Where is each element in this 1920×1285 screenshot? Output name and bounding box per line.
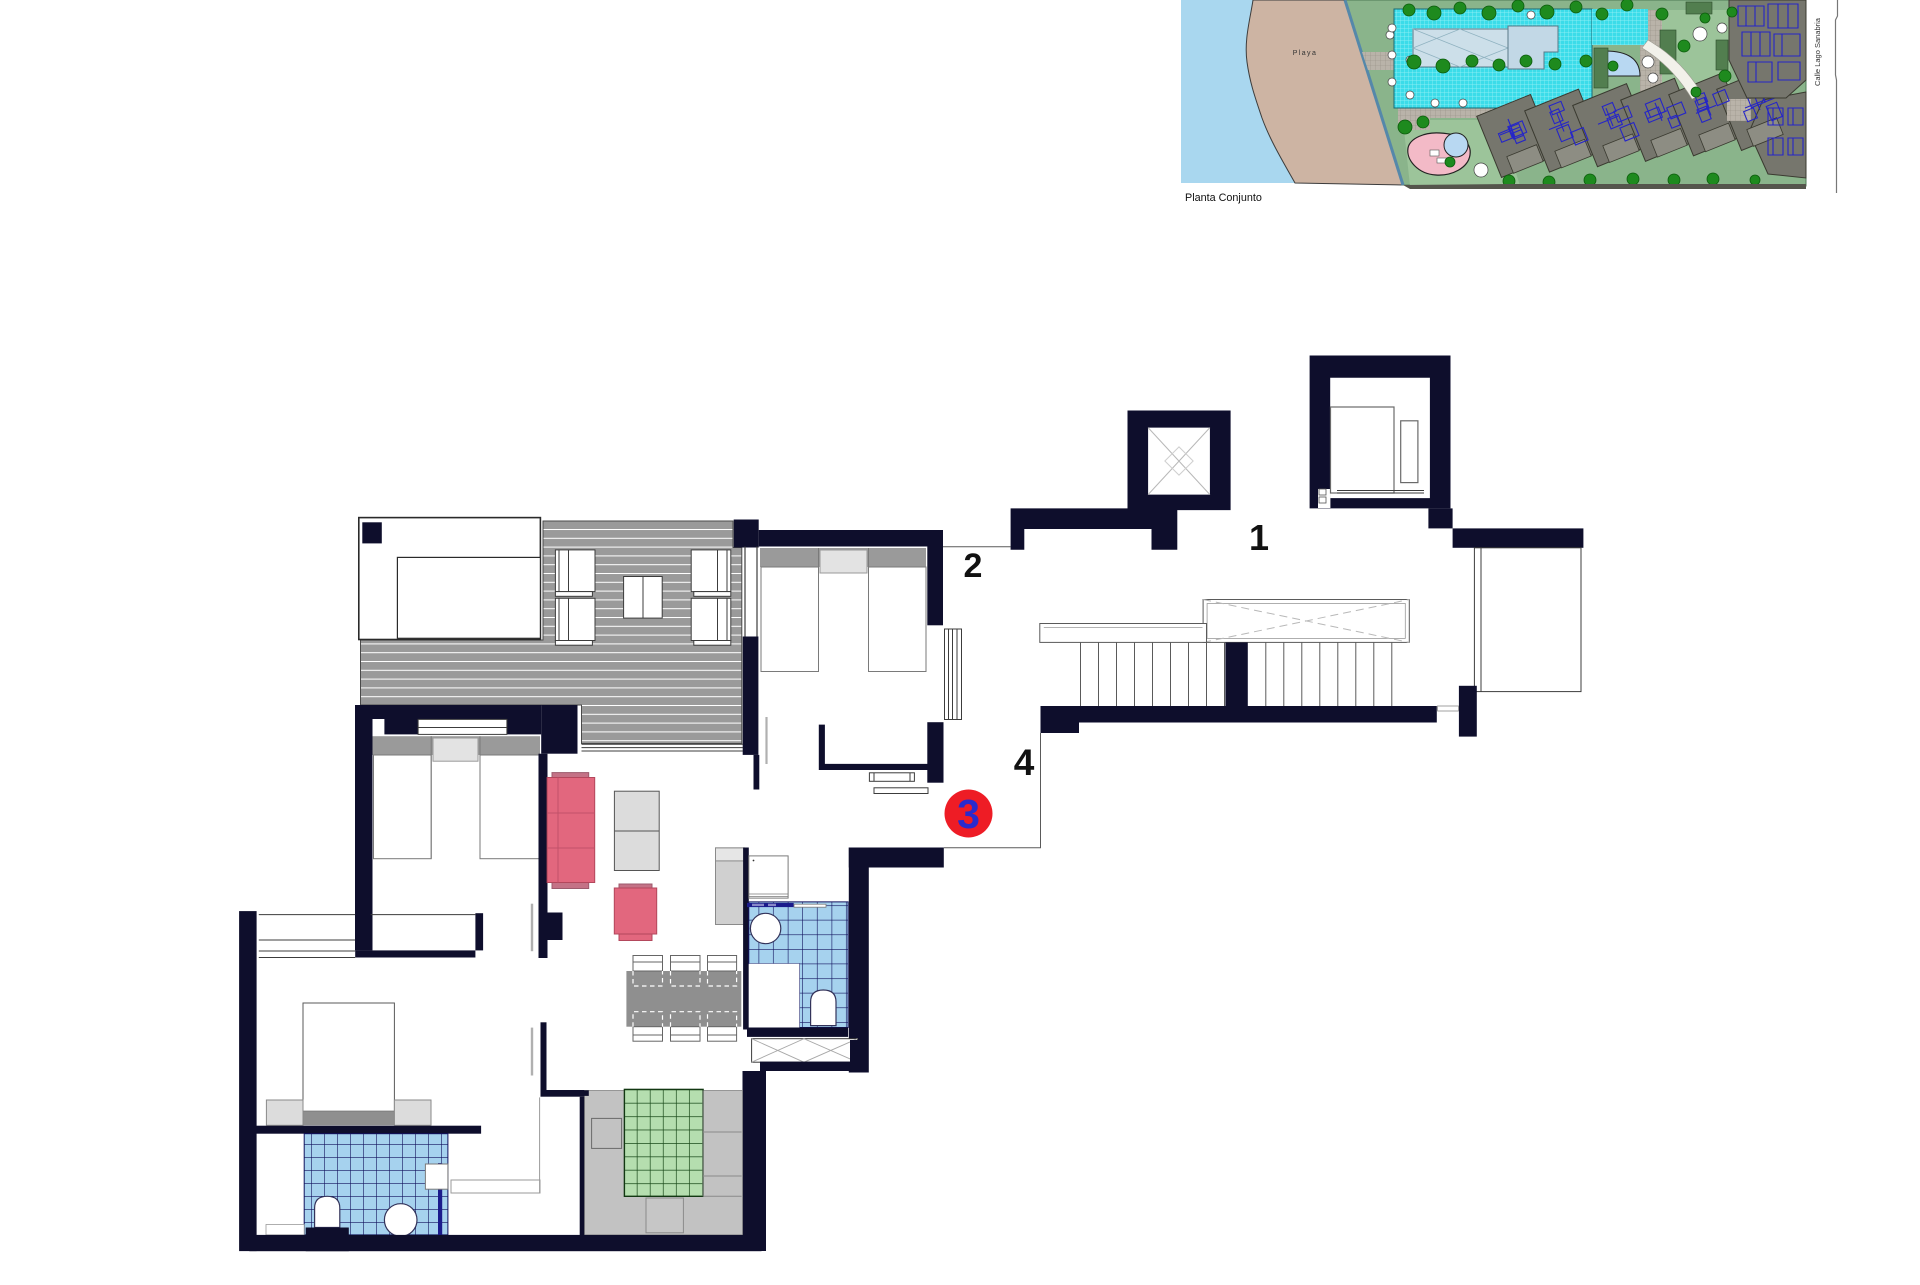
svg-text:1: 1 bbox=[1249, 517, 1269, 558]
svg-text:Planta Conjunto: Planta Conjunto bbox=[1185, 192, 1262, 204]
svg-text:4: 4 bbox=[1014, 742, 1035, 783]
svg-text:Playa: Playa bbox=[1293, 50, 1318, 57]
svg-text:2: 2 bbox=[964, 547, 983, 585]
svg-text:3: 3 bbox=[957, 791, 980, 837]
svg-text:Calle Lago Sanabria: Calle Lago Sanabria bbox=[1813, 17, 1822, 86]
